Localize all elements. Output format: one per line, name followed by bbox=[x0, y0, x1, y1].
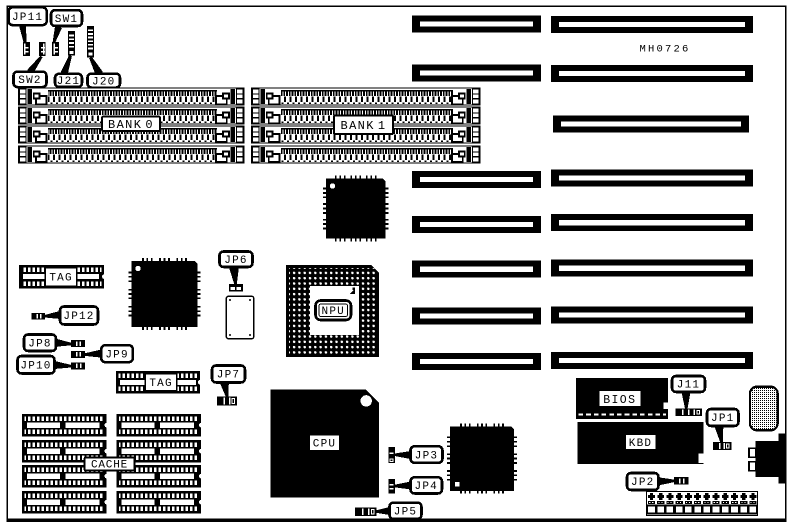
svg-text:JP5: JP5 bbox=[394, 507, 417, 519]
svg-text:BANK0: BANK0 bbox=[108, 118, 154, 132]
svg-text:JP7: JP7 bbox=[217, 370, 240, 382]
svg-text:JP6: JP6 bbox=[224, 255, 247, 267]
svg-text:JP3: JP3 bbox=[415, 450, 438, 462]
svg-text:SW1: SW1 bbox=[55, 14, 78, 26]
svg-text:SW2: SW2 bbox=[18, 75, 41, 87]
svg-text:J21: J21 bbox=[57, 76, 80, 88]
svg-text:JP8: JP8 bbox=[28, 339, 51, 351]
svg-text:KBD: KBD bbox=[629, 438, 652, 450]
svg-text:BIOS: BIOS bbox=[603, 394, 636, 407]
svg-text:MH0726: MH0726 bbox=[639, 44, 690, 56]
svg-text:J11: J11 bbox=[677, 380, 700, 392]
svg-text:JP12: JP12 bbox=[63, 311, 94, 323]
svg-text:JP11: JP11 bbox=[12, 12, 43, 24]
svg-text:J20: J20 bbox=[92, 76, 115, 88]
svg-text:JP4: JP4 bbox=[415, 481, 438, 493]
svg-text:TAG: TAG bbox=[149, 378, 172, 390]
svg-text:CPU: CPU bbox=[313, 439, 336, 451]
svg-text:TAG: TAG bbox=[49, 273, 72, 285]
svg-text:JP9: JP9 bbox=[105, 349, 128, 361]
svg-text:JP10: JP10 bbox=[20, 361, 51, 373]
svg-text:JP2: JP2 bbox=[631, 477, 654, 489]
svg-text:CACHE: CACHE bbox=[91, 460, 128, 472]
svg-text:BANK1: BANK1 bbox=[340, 119, 386, 133]
svg-text:JP1: JP1 bbox=[711, 413, 734, 425]
